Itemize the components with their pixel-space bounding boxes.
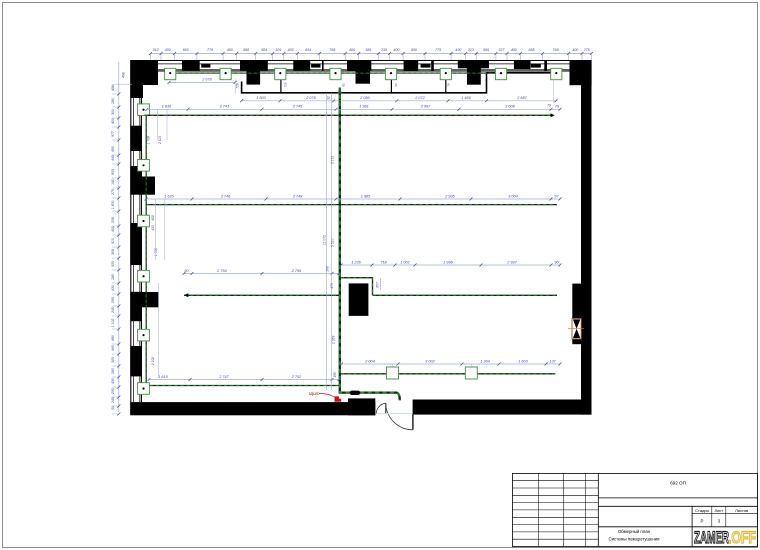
- svg-text:335: 335: [381, 48, 387, 52]
- svg-text:2 747: 2 747: [218, 375, 229, 379]
- svg-text:440: 440: [111, 155, 115, 161]
- svg-text:400: 400: [111, 118, 115, 124]
- svg-text:Р: Р: [701, 519, 704, 524]
- svg-text:137: 137: [549, 359, 556, 363]
- svg-text:2 090: 2 090: [359, 96, 370, 100]
- svg-text:726: 726: [236, 83, 240, 89]
- svg-text:400: 400: [349, 48, 355, 52]
- svg-text:92: 92: [394, 83, 398, 87]
- svg-text:300: 300: [111, 109, 115, 115]
- svg-text:430: 430: [111, 378, 115, 384]
- svg-text:663: 663: [183, 48, 189, 52]
- svg-text:1 102: 1 102: [111, 319, 115, 328]
- svg-text:92: 92: [327, 96, 331, 100]
- svg-text:2 102: 2 102: [151, 357, 155, 366]
- svg-text:430: 430: [455, 48, 461, 52]
- svg-text:400: 400: [227, 48, 233, 52]
- svg-text:568: 568: [243, 48, 249, 52]
- svg-text:245: 245: [111, 397, 115, 404]
- svg-text:977: 977: [111, 131, 115, 137]
- svg-text:440: 440: [111, 345, 115, 351]
- svg-text:1 503: 1 503: [256, 96, 266, 100]
- svg-text:3 002: 3 002: [425, 359, 435, 363]
- svg-text:3 004: 3 004: [508, 194, 518, 198]
- svg-text:295: 295: [111, 297, 115, 304]
- svg-text:Стадия: Стадия: [695, 508, 709, 513]
- svg-text:2 755: 2 755: [291, 269, 302, 273]
- svg-text:769: 769: [553, 48, 559, 52]
- svg-text:275: 275: [583, 48, 590, 52]
- svg-text:498: 498: [111, 85, 115, 91]
- svg-text:5 510: 5 510: [331, 239, 335, 248]
- svg-text:275: 275: [111, 189, 115, 196]
- svg-text:295: 295: [111, 388, 115, 395]
- svg-text:Лист: Лист: [714, 508, 723, 513]
- svg-text:329: 329: [275, 48, 281, 52]
- svg-text:1 364: 1 364: [480, 359, 490, 363]
- svg-text:3 008: 3 008: [505, 105, 515, 109]
- svg-text:1 466: 1 466: [461, 96, 471, 100]
- svg-text:ZAMER: ZAMER: [694, 529, 729, 547]
- svg-text:490: 490: [111, 146, 115, 152]
- svg-text:285: 285: [111, 368, 115, 375]
- svg-text:430: 430: [111, 285, 115, 291]
- svg-text:654: 654: [305, 48, 311, 52]
- svg-text:658: 658: [529, 48, 535, 52]
- svg-text:1 603: 1 603: [518, 359, 528, 363]
- svg-text:490: 490: [111, 335, 115, 341]
- svg-text:2 079: 2 079: [305, 96, 316, 100]
- svg-text:2 997: 2 997: [506, 260, 517, 264]
- svg-text:1 500: 1 500: [111, 201, 115, 210]
- svg-text:Листов: Листов: [735, 508, 748, 513]
- svg-text:245: 245: [111, 307, 115, 314]
- svg-text:50: 50: [111, 406, 115, 410]
- svg-text:504: 504: [261, 48, 267, 52]
- svg-text:1 615: 1 615: [158, 375, 168, 379]
- svg-text:2 004: 2 004: [364, 359, 375, 363]
- svg-text:1 996: 1 996: [443, 260, 453, 264]
- svg-text:1 738: 1 738: [154, 248, 158, 256]
- svg-text:1 985: 1 985: [361, 194, 371, 198]
- svg-text:2 749: 2 749: [292, 194, 303, 198]
- svg-text:2 741: 2 741: [219, 105, 230, 109]
- svg-text:586: 586: [483, 48, 489, 52]
- svg-text:473: 473: [330, 283, 334, 289]
- svg-text:2 746: 2 746: [220, 194, 231, 198]
- svg-text:400: 400: [572, 48, 578, 52]
- svg-text:775: 775: [435, 48, 441, 52]
- svg-text:400: 400: [393, 48, 399, 52]
- svg-text:3 151: 3 151: [331, 156, 335, 165]
- svg-text:1 991: 1 991: [359, 105, 369, 109]
- svg-text:1 636: 1 636: [162, 105, 172, 109]
- svg-text:2 101: 2 101: [158, 136, 162, 145]
- svg-text:498: 498: [122, 72, 126, 78]
- svg-text:650: 650: [411, 48, 417, 52]
- svg-text:3 959: 3 959: [332, 336, 336, 345]
- svg-text:692 ОП: 692 ОП: [670, 481, 686, 486]
- svg-text:2 687: 2 687: [516, 96, 527, 100]
- svg-text:581: 581: [366, 48, 372, 52]
- svg-text:768: 768: [329, 48, 335, 52]
- svg-text:400: 400: [111, 226, 115, 232]
- svg-text:400: 400: [511, 48, 517, 52]
- svg-text:327: 327: [498, 48, 505, 52]
- svg-text:1 708: 1 708: [147, 136, 151, 144]
- svg-text:2 995: 2 995: [444, 194, 455, 198]
- svg-text:11 072: 11 072: [323, 235, 327, 245]
- svg-text:657: 657: [376, 282, 380, 288]
- svg-text:285: 285: [111, 274, 115, 281]
- svg-text:2 745: 2 745: [292, 105, 303, 109]
- svg-text:Обмерный план: Обмерный план: [618, 529, 651, 534]
- svg-text:76: 76: [447, 83, 451, 87]
- svg-text:2 754: 2 754: [216, 269, 227, 273]
- svg-text:1 236: 1 236: [351, 260, 361, 264]
- svg-text:953: 953: [111, 169, 115, 175]
- svg-text:2 072: 2 072: [414, 96, 425, 100]
- svg-text:400: 400: [151, 215, 155, 221]
- svg-text:2 676: 2 676: [201, 78, 212, 82]
- svg-text:258: 258: [111, 217, 115, 224]
- svg-text:.OFF: .OFF: [728, 529, 756, 547]
- svg-text:400: 400: [165, 48, 171, 52]
- svg-text:1 002: 1 002: [400, 260, 410, 264]
- svg-text:726: 726: [284, 82, 288, 87]
- svg-text:400: 400: [288, 48, 294, 52]
- svg-text:555: 555: [111, 261, 115, 267]
- svg-text:Щит: Щит: [309, 391, 320, 396]
- svg-text:779: 779: [207, 48, 213, 52]
- svg-text:Системы пожаротушения: Системы пожаротушения: [609, 537, 661, 542]
- svg-text:312: 312: [153, 48, 159, 52]
- svg-text:79: 79: [547, 104, 551, 108]
- svg-text:433: 433: [151, 225, 155, 231]
- svg-text:1 620: 1 620: [164, 194, 174, 198]
- svg-text:718: 718: [380, 260, 387, 264]
- svg-text:268: 268: [326, 266, 330, 273]
- svg-text:2 997: 2 997: [420, 105, 431, 109]
- svg-text:195: 195: [333, 372, 337, 378]
- svg-text:280: 280: [111, 98, 115, 105]
- svg-text:92: 92: [342, 83, 346, 87]
- svg-text:565: 565: [111, 357, 115, 363]
- svg-text:313: 313: [468, 48, 474, 52]
- svg-text:510: 510: [111, 238, 115, 244]
- svg-text:308: 308: [111, 249, 115, 255]
- svg-text:2 752: 2 752: [291, 375, 302, 379]
- svg-text:140: 140: [111, 179, 115, 185]
